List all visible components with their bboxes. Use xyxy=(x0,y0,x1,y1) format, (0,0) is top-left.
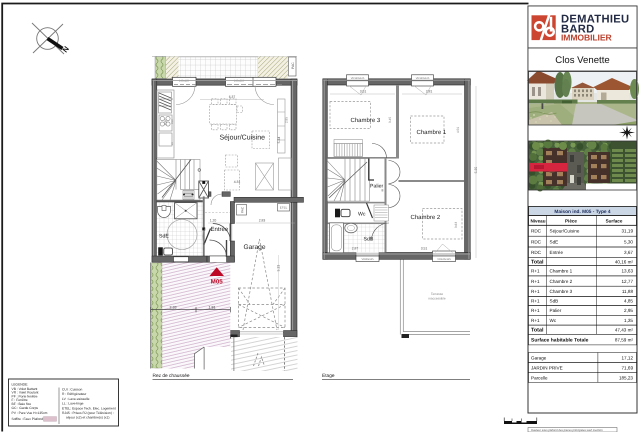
svg-text:VR120x125: VR120x125 xyxy=(351,77,365,80)
svg-text:Chambre 1: Chambre 1 xyxy=(550,269,573,274)
svg-text:Clos Venette: Clos Venette xyxy=(555,55,609,66)
svg-text:RDC: RDC xyxy=(531,250,542,255)
svg-text:12,77: 12,77 xyxy=(622,279,634,284)
svg-text:Surface habitable Totale: Surface habitable Totale xyxy=(531,338,589,344)
svg-text:6.37: 6.37 xyxy=(229,95,236,99)
svg-text:Chambre 1: Chambre 1 xyxy=(417,129,447,136)
svg-text:PV : Pare Vue H=135cm: PV : Pare Vue H=135cm xyxy=(12,411,48,415)
svg-text:Palier: Palier xyxy=(550,308,562,313)
svg-text:3.63: 3.63 xyxy=(454,222,458,228)
svg-text:ETEL: ETEL xyxy=(280,206,288,210)
svg-text:Surface: Surface xyxy=(606,219,623,224)
svg-text:Total: Total xyxy=(531,259,544,265)
svg-text:Garage: Garage xyxy=(244,244,266,251)
svg-text:PAC: PAC xyxy=(291,62,295,69)
svg-text:5.34: 5.34 xyxy=(277,137,281,144)
svg-text:185,23: 185,23 xyxy=(619,376,633,381)
svg-text:PAC: PAC xyxy=(241,206,245,213)
svg-text:2.85: 2.85 xyxy=(285,117,289,123)
svg-text:VR90x125: VR90x125 xyxy=(361,258,374,261)
svg-text:SdE: SdE xyxy=(159,234,169,240)
svg-text:2.87: 2.87 xyxy=(352,247,359,251)
svg-text:Entrée: Entrée xyxy=(550,250,564,255)
svg-text:R+1: R+1 xyxy=(531,289,540,294)
svg-text:3.51: 3.51 xyxy=(421,247,428,251)
svg-text:4,85: 4,85 xyxy=(624,299,633,304)
svg-text:CUI : Cuisson: CUI : Cuisson xyxy=(62,388,83,392)
svg-text:1.81: 1.81 xyxy=(209,305,216,309)
svg-text:Chambre 2: Chambre 2 xyxy=(411,214,441,221)
svg-text:LV : Lave-vaisselle: LV : Lave-vaisselle xyxy=(62,397,90,401)
svg-text:3,67: 3,67 xyxy=(624,250,633,255)
svg-text:LL : Lave-linge: LL : Lave-linge xyxy=(62,402,84,406)
svg-text:2.81: 2.81 xyxy=(426,90,433,94)
svg-text:RJ45 : Prises RJ (pour Télévis: RJ45 : Prises RJ (pour Télévision) : xyxy=(62,411,114,415)
svg-text:5,30: 5,30 xyxy=(624,239,633,244)
svg-text:Wc: Wc xyxy=(550,318,557,323)
svg-text:2.33: 2.33 xyxy=(170,305,177,309)
svg-text:IMMOBILIER: IMMOBILIER xyxy=(561,32,612,42)
svg-text:1.20: 1.20 xyxy=(210,219,217,223)
svg-text:47,43 m²: 47,43 m² xyxy=(615,327,634,332)
svg-text:13,63: 13,63 xyxy=(622,269,634,274)
svg-text:R+1: R+1 xyxy=(531,269,540,274)
svg-text:Terrasse: Terrasse xyxy=(431,292,443,296)
svg-text:Parcelle: Parcelle xyxy=(531,376,548,381)
svg-text:Niveau: Niveau xyxy=(530,219,545,224)
svg-text:Wc: Wc xyxy=(358,212,366,218)
svg-text:Soffite : Faux Plafond: Soffite : Faux Plafond xyxy=(12,417,44,421)
svg-text:Total: Total xyxy=(531,327,544,333)
svg-text:4.59: 4.59 xyxy=(456,127,460,133)
svg-text:87,59 m²: 87,59 m² xyxy=(615,338,634,343)
svg-text:3.45: 3.45 xyxy=(388,117,392,123)
svg-text:3.50: 3.50 xyxy=(164,119,168,126)
svg-text:SdB: SdB xyxy=(364,237,374,243)
svg-text:séjour (x2) et chambre(s) (x1): séjour (x2) et chambre(s) (x1) xyxy=(66,416,109,420)
svg-text:Hauteur sous plafond des pièce: Hauteur sous plafond des pièces principa… xyxy=(531,428,603,432)
svg-text:Garage: Garage xyxy=(531,356,547,361)
svg-text:3.51: 3.51 xyxy=(360,90,367,94)
svg-text:31,19: 31,19 xyxy=(622,229,634,234)
svg-text:ETEL: Espace Tech. Elec. Logem: ETEL: Espace Tech. Elec. Logement xyxy=(62,406,116,410)
svg-text:Chambre 2: Chambre 2 xyxy=(550,279,573,284)
svg-text:8: 8 xyxy=(382,189,384,193)
svg-text:2,95: 2,95 xyxy=(624,308,633,313)
svg-text:240x215: 240x215 xyxy=(234,80,245,83)
svg-text:1,35: 1,35 xyxy=(624,318,633,323)
svg-text:140x125: 140x125 xyxy=(179,80,190,83)
svg-text:R+1: R+1 xyxy=(531,279,540,284)
svg-text:2.83: 2.83 xyxy=(259,219,266,223)
svg-text:inaccessible: inaccessible xyxy=(428,297,446,301)
svg-text:Séjour/Cuisine: Séjour/Cuisine xyxy=(220,134,266,142)
svg-text:R : Réfrigérateur: R : Réfrigérateur xyxy=(62,392,87,396)
svg-text:11,88: 11,88 xyxy=(622,289,634,294)
svg-text:RDC: RDC xyxy=(531,229,542,234)
svg-text:CUI: CUI xyxy=(171,119,174,124)
svg-text:Pièce: Pièce xyxy=(565,219,577,224)
svg-text:Maison ind. M05 - Type 4: Maison ind. M05 - Type 4 xyxy=(554,209,610,215)
svg-text:17,12: 17,12 xyxy=(622,356,634,361)
svg-text:M05: M05 xyxy=(211,278,224,285)
svg-text:R: R xyxy=(171,98,174,100)
svg-text:JARDIN PRIVE: JARDIN PRIVE xyxy=(531,366,563,371)
svg-text:VR120x125: VR120x125 xyxy=(416,77,430,80)
svg-text:LV: LV xyxy=(171,142,174,145)
svg-text:40,16 m²: 40,16 m² xyxy=(615,259,634,264)
svg-text:Chambre 3: Chambre 3 xyxy=(550,289,573,294)
svg-text:Séjour/Cuisine: Séjour/Cuisine xyxy=(550,229,580,234)
svg-text:GC : Garde Corps: GC : Garde Corps xyxy=(12,406,39,410)
svg-text:4.31: 4.31 xyxy=(234,180,241,184)
svg-text:Chambre 3: Chambre 3 xyxy=(351,117,381,124)
svg-text:RDC: RDC xyxy=(531,239,542,244)
svg-text:Etage: Etage xyxy=(322,373,335,379)
svg-text:R+1: R+1 xyxy=(531,318,540,323)
svg-text:SdB: SdB xyxy=(550,299,559,304)
svg-text:R+1: R+1 xyxy=(531,299,540,304)
svg-text:71,69: 71,69 xyxy=(622,366,634,371)
svg-text:VR120x125: VR120x125 xyxy=(437,258,451,261)
svg-text:R+1: R+1 xyxy=(531,308,540,313)
svg-text:Rez de chaussée: Rez de chaussée xyxy=(153,373,190,379)
svg-text:SdE: SdE xyxy=(550,239,559,244)
